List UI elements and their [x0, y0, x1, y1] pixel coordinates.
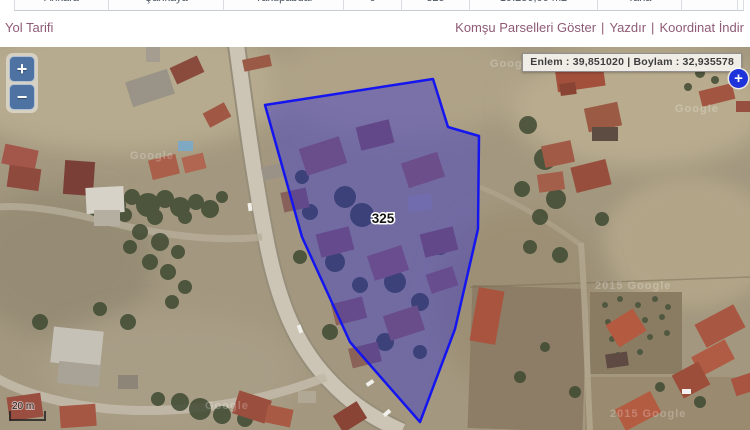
parcel-result-row: Ankara Çankaya Yakupabdal 0 325 19.250,0… [14, 0, 744, 11]
cell-ilce: Çankaya [109, 0, 224, 11]
cell-nitelik: Tarla [598, 0, 682, 11]
cell-empty-1 [682, 0, 738, 11]
cell-mahalle: Yakupabdal [224, 0, 344, 11]
actions-bar: Yol Tarifi Komşu Parselleri Göster | Yaz… [0, 11, 750, 47]
cell-ada: 0 [344, 0, 402, 11]
koordinat-indir-link[interactable]: Koordinat İndir [659, 20, 744, 35]
zoom-control: + − [6, 53, 38, 113]
watermark-text: Google [130, 150, 174, 162]
scale-label: 20 m [12, 401, 34, 412]
cell-il: Ankara [14, 0, 109, 11]
cell-empty-2 [738, 0, 744, 11]
watermark-text: 2015 Google [610, 408, 686, 420]
cell-alan: 19.250,00 m2 [470, 0, 598, 11]
cell-parsel: 325 [402, 0, 470, 11]
watermark-text: Google [675, 103, 719, 115]
zoom-out-button[interactable]: − [9, 84, 35, 110]
yol-tarifi-link[interactable]: Yol Tarifi [5, 20, 53, 35]
parcel-number-label: 325 [372, 211, 395, 226]
parcel-result-table: Ankara Çankaya Yakupabdal 0 325 19.250,0… [0, 0, 750, 11]
link-separator: | [651, 20, 654, 35]
satellite-map[interactable]: Google Google Google 2015 Google 2015 Go… [0, 47, 750, 430]
link-separator: | [601, 20, 604, 35]
zoom-in-button[interactable]: + [9, 56, 35, 82]
coordinates-readout: Enlem : 39,851020 | Boylam : 32,935578 [522, 53, 742, 72]
right-links: Komşu Parselleri Göster | Yazdır | Koord… [455, 20, 744, 35]
expand-layers-button[interactable]: + [729, 69, 748, 88]
yazdir-link[interactable]: Yazdır [609, 20, 646, 35]
komsu-parselleri-link[interactable]: Komşu Parselleri Göster [455, 20, 596, 35]
watermark-text: 2015 Google [595, 280, 671, 292]
map-canvas: Google Google Google 2015 Google 2015 Go… [0, 47, 750, 430]
watermark-text: Google [205, 400, 249, 412]
